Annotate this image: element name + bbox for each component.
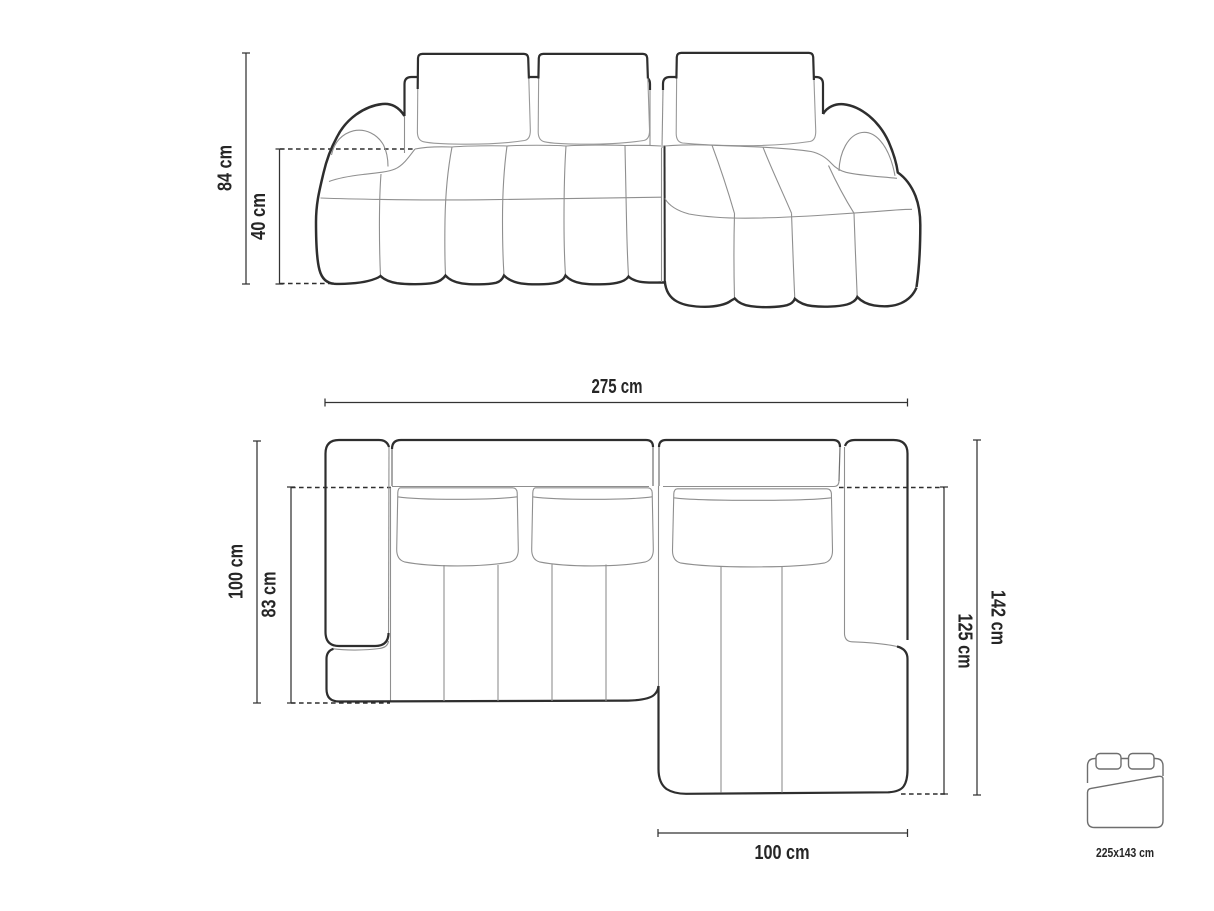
svg-text:100 cm: 100 cm bbox=[226, 544, 248, 599]
svg-text:84 cm: 84 cm bbox=[215, 145, 237, 191]
svg-text:275 cm: 275 cm bbox=[592, 376, 643, 398]
svg-text:83 cm: 83 cm bbox=[259, 572, 281, 618]
svg-text:125 cm: 125 cm bbox=[954, 614, 976, 669]
svg-text:40 cm: 40 cm bbox=[248, 193, 270, 240]
svg-text:142 cm: 142 cm bbox=[987, 590, 1009, 645]
svg-text:225x143 cm: 225x143 cm bbox=[1096, 846, 1154, 860]
svg-text:100 cm: 100 cm bbox=[755, 842, 810, 864]
